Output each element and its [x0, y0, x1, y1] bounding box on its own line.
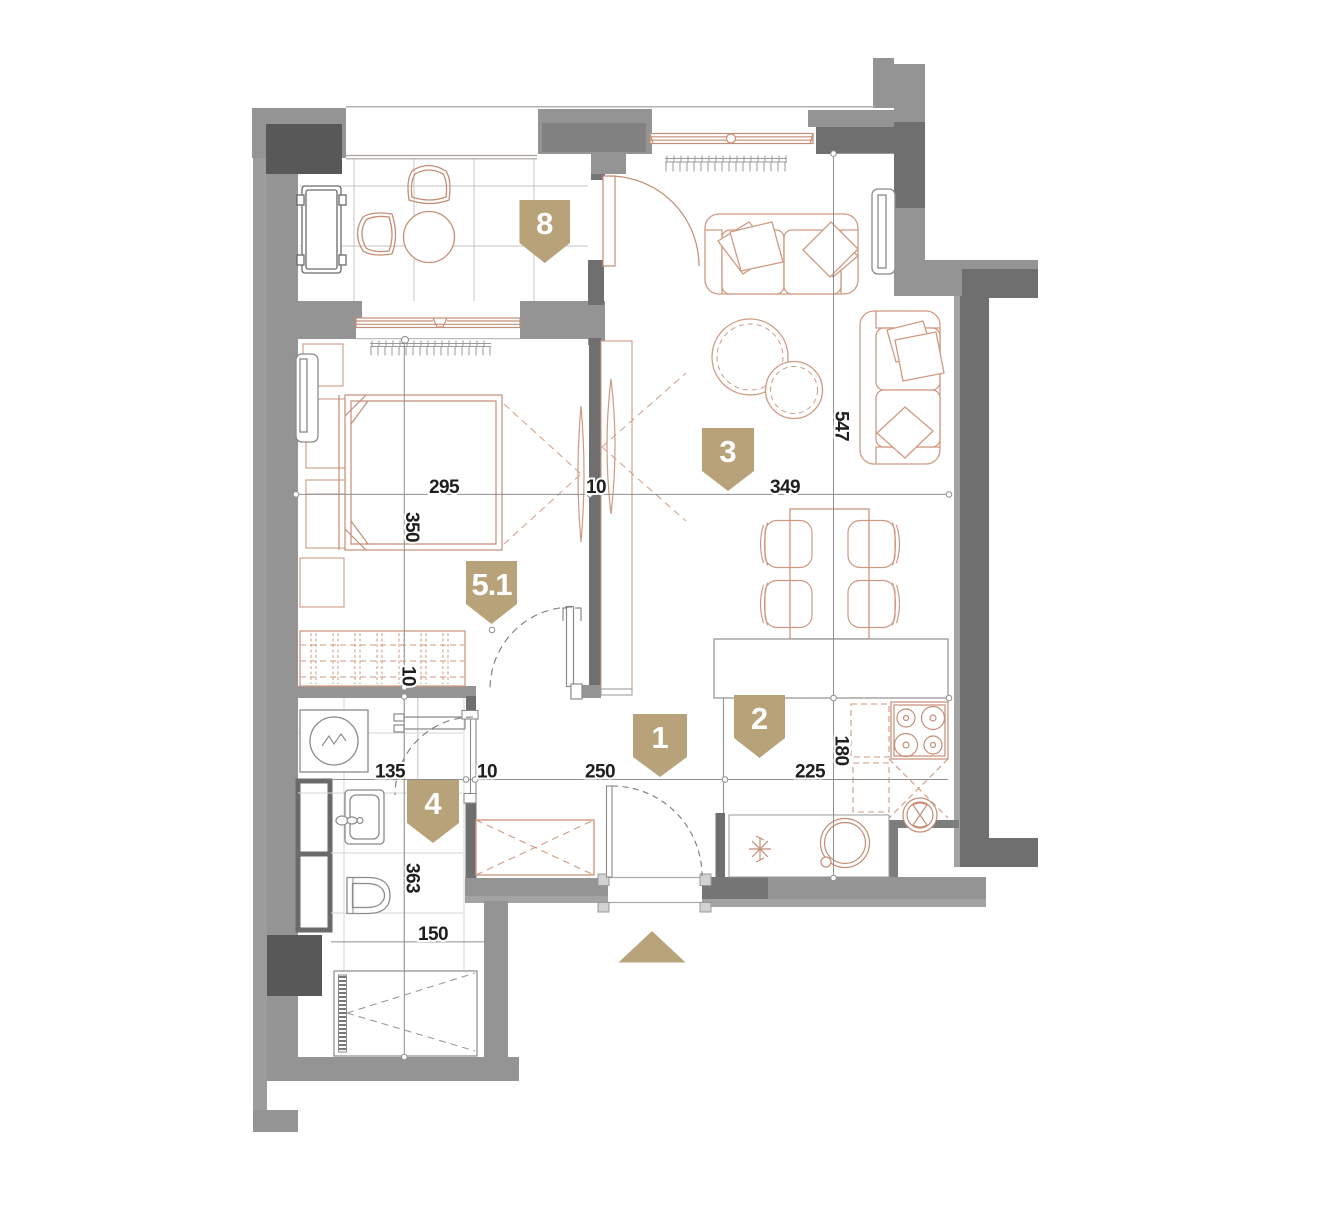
svg-text:2: 2	[751, 701, 768, 736]
svg-text:3: 3	[719, 434, 736, 469]
svg-text:250: 250	[585, 762, 615, 783]
svg-text:135: 135	[375, 762, 406, 783]
svg-text:4: 4	[424, 786, 442, 821]
svg-text:349: 349	[770, 477, 800, 498]
svg-text:5.1: 5.1	[471, 567, 512, 602]
svg-text:295: 295	[429, 477, 460, 498]
svg-text:8: 8	[536, 206, 553, 241]
svg-text:363: 363	[402, 863, 423, 893]
svg-text:1: 1	[651, 720, 668, 755]
svg-text:180: 180	[831, 736, 852, 766]
svg-text:225: 225	[795, 762, 826, 783]
svg-text:10: 10	[586, 477, 606, 498]
svg-text:150: 150	[418, 924, 448, 945]
svg-text:350: 350	[401, 512, 422, 542]
svg-text:10: 10	[398, 666, 419, 686]
svg-text:547: 547	[831, 411, 852, 441]
svg-text:10: 10	[477, 762, 497, 783]
